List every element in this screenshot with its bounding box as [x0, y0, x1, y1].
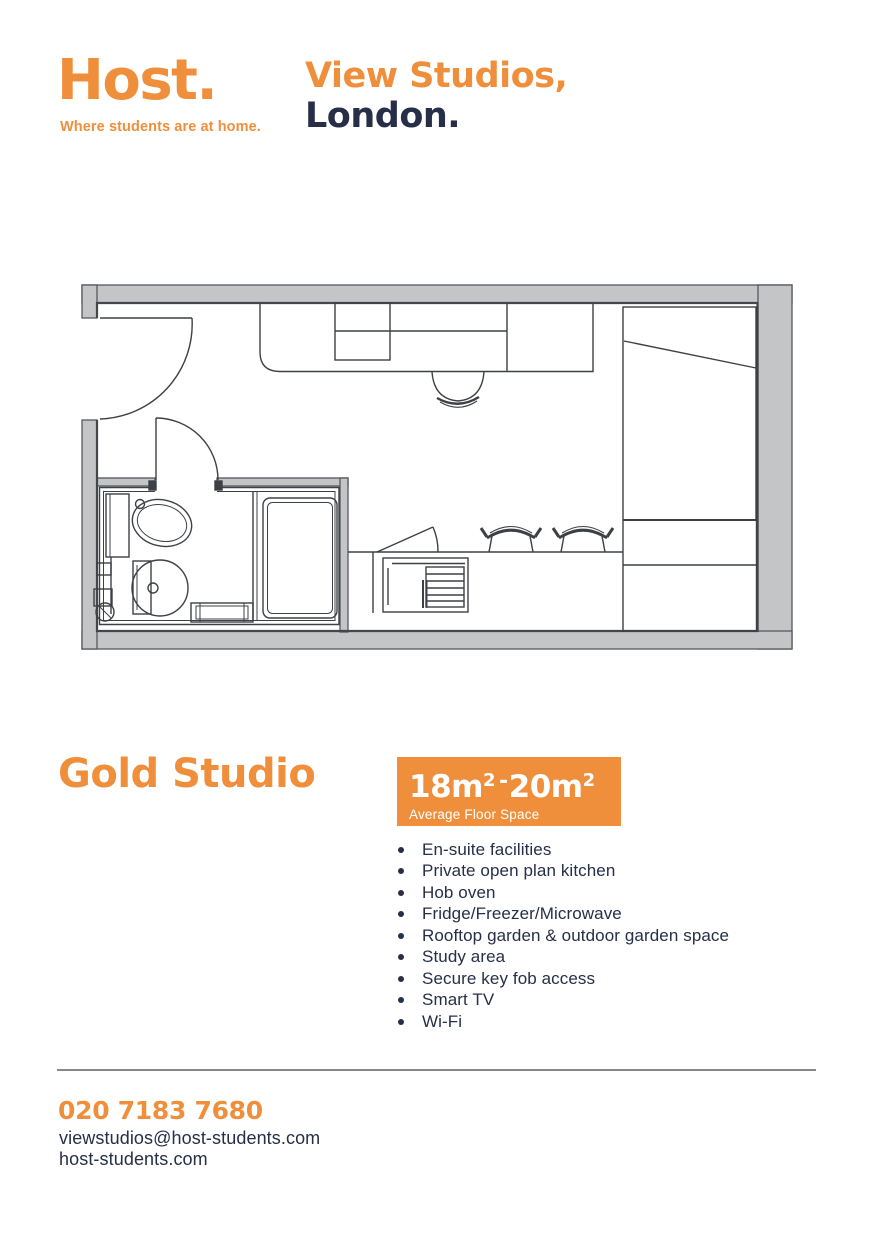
email-address: viewstudios@host-students.com: [59, 1128, 320, 1149]
wall-right: [758, 285, 792, 649]
area-badge: 18m2-20m2 Average Floor Space: [397, 757, 621, 826]
feature-item: Private open plan kitchen: [398, 861, 729, 883]
bullet-icon: [398, 847, 404, 853]
bench: [191, 603, 253, 622]
bullet-icon: [398, 933, 404, 939]
feature-item: Hob oven: [398, 882, 729, 904]
shower-tray: [263, 498, 337, 618]
feature-item: Rooftop garden & outdoor garden space: [398, 925, 729, 947]
wardrobe-unit: [623, 307, 757, 631]
bullet-icon: [398, 976, 404, 982]
desk-chair: [432, 372, 484, 407]
bullet-icon: [398, 890, 404, 896]
bathroom: [94, 418, 339, 625]
bullet-icon: [398, 954, 404, 960]
bathroom-door: [156, 418, 218, 480]
feature-item: Secure key fob access: [398, 968, 729, 990]
feature-item: Study area: [398, 947, 729, 969]
sink: [132, 560, 188, 616]
phone-number: 020 7183 7680: [58, 1096, 263, 1125]
wall-left-lower: [82, 420, 97, 649]
flyer-page: Host. Where students are at home. View S…: [0, 0, 875, 1241]
bullet-icon: [398, 1019, 404, 1025]
bullet-icon: [398, 911, 404, 917]
feature-list: En-suite facilities Private open plan ki…: [398, 839, 729, 1033]
feature-item: Wi-Fi: [398, 1011, 729, 1033]
cupboard-door: [377, 527, 438, 552]
study-desk: [373, 552, 468, 613]
bullet-icon: [398, 868, 404, 874]
wall-bathroom-top-right: [217, 478, 348, 486]
footer-divider: [57, 1069, 816, 1071]
wall-bathroom-top-left: [97, 478, 155, 486]
area-caption: Average Floor Space: [409, 807, 609, 822]
wall-bathroom-right: [340, 478, 348, 632]
website-url: host-students.com: [59, 1149, 208, 1170]
area-range: 18m2-20m2: [409, 763, 609, 805]
feature-item: Smart TV: [398, 990, 729, 1012]
kitchen-counter: [260, 303, 593, 372]
toilet: [106, 493, 197, 557]
floorplan-diagram: [0, 0, 875, 1241]
stool: [553, 527, 613, 553]
feature-item: En-suite facilities: [398, 839, 729, 861]
stool: [481, 527, 541, 553]
bullet-icon: [398, 997, 404, 1003]
floorplan-fixtures: [94, 303, 757, 631]
feature-item: Fridge/Freezer/Microwave: [398, 904, 729, 926]
entrance-door: [100, 318, 192, 419]
studio-title: Gold Studio: [58, 751, 315, 797]
wall-top: [82, 285, 792, 303]
wall-bottom: [82, 631, 792, 649]
wall-left-upper: [82, 285, 97, 318]
